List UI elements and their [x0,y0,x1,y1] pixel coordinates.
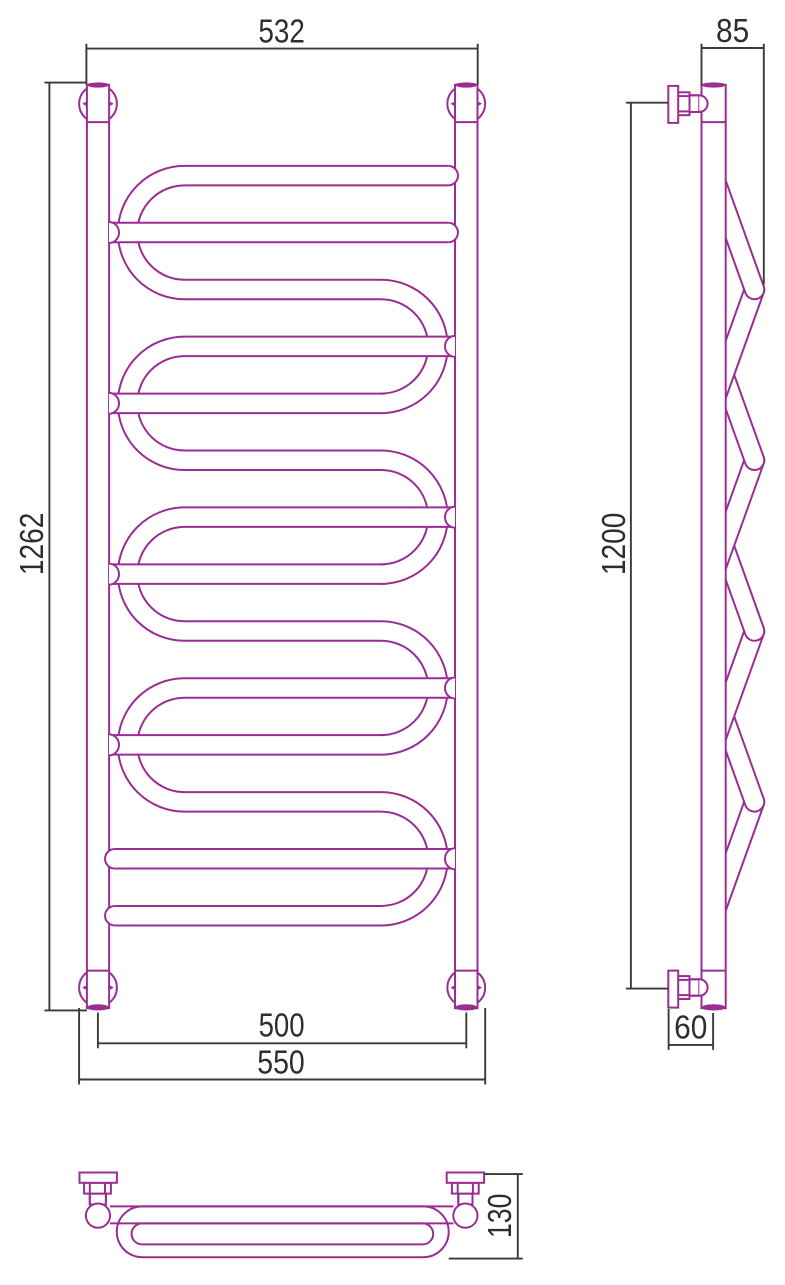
svg-text:532: 532 [258,12,305,49]
svg-text:1262: 1262 [13,513,50,576]
svg-text:85: 85 [716,12,749,49]
svg-text:550: 550 [257,1043,305,1080]
svg-text:500: 500 [259,1007,305,1044]
svg-text:130: 130 [481,1194,518,1239]
svg-text:1200: 1200 [595,513,632,576]
svg-text:60: 60 [674,1009,707,1046]
